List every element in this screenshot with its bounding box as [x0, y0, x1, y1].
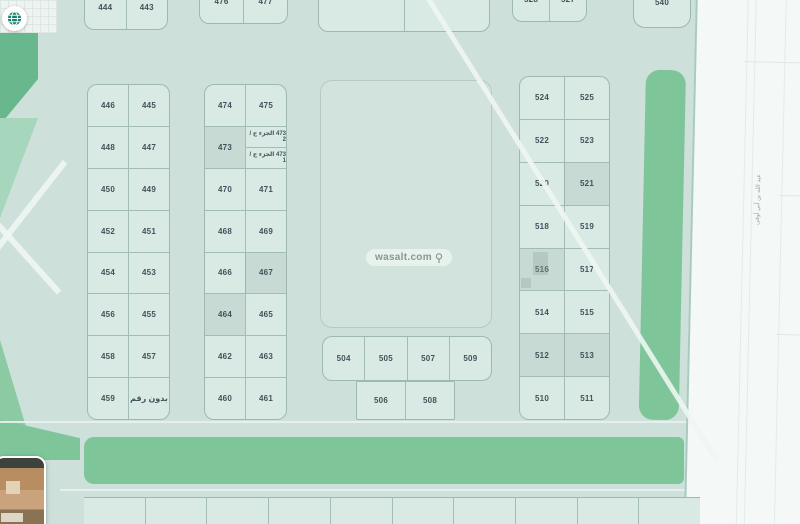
parcel-cell[interactable]: 523: [564, 120, 609, 162]
parcel-cell[interactable]: 464: [205, 294, 245, 335]
parcel-block-right-column: 5245255225235205215185195165175145155125…: [519, 76, 610, 420]
parcel-cell[interactable]: [206, 498, 268, 524]
parcel-row: 458457: [88, 335, 169, 377]
parcel-cell[interactable]: 451: [128, 211, 169, 252]
park-strip-bottom: [84, 437, 684, 484]
parcel-cell[interactable]: 454: [88, 253, 128, 294]
parcel-cell[interactable]: [319, 0, 404, 31]
parcel-subcell[interactable]: 473 الجزء ج / 1: [246, 147, 286, 168]
parcel-row: 540: [634, 0, 690, 27]
parcel-cell[interactable]: 521: [564, 163, 609, 205]
parcel-cell[interactable]: 524: [520, 77, 564, 119]
road-vertical-right: [683, 0, 800, 524]
parcel-cell[interactable]: 463: [245, 336, 286, 377]
parcel-row: 448447: [88, 126, 169, 168]
parcel-block-top-right-single: 540: [633, 0, 691, 28]
parcel-cell[interactable]: [638, 498, 700, 524]
parcel-cell[interactable]: 457: [128, 336, 169, 377]
parcel-cell[interactable]: 452: [88, 211, 128, 252]
parcel-cell[interactable]: 473 الجزء ج / 2473 الجزء ج / 1: [245, 127, 286, 168]
parcel-cell[interactable]: 507: [407, 337, 449, 380]
parcel-block-bottom-row-bottom: 506508: [356, 381, 455, 420]
parcel-cell[interactable]: 505: [364, 337, 406, 380]
parcel-cell[interactable]: 453: [128, 253, 169, 294]
road-edge-line: [683, 0, 698, 524]
parcel-cell[interactable]: 460: [205, 378, 245, 419]
central-parcel-block[interactable]: [320, 80, 492, 328]
parcel-block-top-wide: [318, 0, 490, 32]
parcel-row: 528527: [513, 0, 586, 21]
parcel-row: 452451: [88, 210, 169, 252]
parcel-cell[interactable]: 527: [549, 0, 586, 21]
parcel-row: 473473 الجزء ج / 2473 الجزء ج / 1: [205, 126, 286, 168]
building-footprint: [533, 252, 548, 275]
globe-icon: [7, 11, 22, 26]
map-pin-icon: [435, 253, 443, 263]
globe-button[interactable]: [2, 6, 27, 31]
diagonal-road: [0, 201, 61, 294]
map-canvas[interactable]: عبد الله بن أبي أوفى 4444434764775285275…: [0, 0, 800, 524]
parcel-cell[interactable]: 461: [245, 378, 286, 419]
road-line: [0, 421, 700, 423]
parcel-cell[interactable]: 511: [564, 377, 609, 419]
parcel-cell[interactable]: بدون رقم: [128, 378, 169, 419]
parcel-cell[interactable]: [145, 498, 207, 524]
parcel-row: 468469: [205, 210, 286, 252]
parcel-cell[interactable]: 445: [128, 85, 169, 126]
road-line: [60, 489, 700, 491]
building-footprint: [521, 278, 531, 288]
parcel-cell[interactable]: 473: [205, 127, 245, 168]
satellite-view-button[interactable]: [0, 456, 46, 524]
parcel-cell[interactable]: 447: [128, 127, 169, 168]
parcel-cell[interactable]: 513: [564, 334, 609, 376]
parcel-row: 524525: [520, 77, 609, 119]
park-area: [0, 33, 38, 125]
parcel-cell[interactable]: 455: [128, 294, 169, 335]
parcel-row: 456455: [88, 293, 169, 335]
parcel-row: 466467: [205, 252, 286, 294]
road-lane-line: [735, 0, 749, 524]
parcel-cell[interactable]: 514: [520, 291, 564, 333]
parcel-cell[interactable]: 477: [243, 0, 287, 23]
parcel-block-top-mid-pair: 476477: [199, 0, 288, 24]
parcel-cell[interactable]: 525: [564, 77, 609, 119]
neighbor-parcel-line: [744, 61, 800, 64]
parcel-block-top-left-pair: 444443: [84, 0, 168, 30]
parcel-cell[interactable]: 506: [357, 382, 405, 419]
parcel-block-bottom-strip: [84, 497, 700, 524]
parcel-cell[interactable]: 516: [520, 249, 564, 291]
parcel-cell[interactable]: 446: [88, 85, 128, 126]
parcel-cell[interactable]: 475: [245, 85, 286, 126]
parcel-cell[interactable]: 509: [449, 337, 491, 380]
parcel-cell[interactable]: 465: [245, 294, 286, 335]
parcel-block-left-column: 4464454484474504494524514544534564554584…: [87, 84, 170, 420]
parcel-cell[interactable]: 466: [205, 253, 245, 294]
parcel-cell[interactable]: 449: [128, 169, 169, 210]
watermark: wasalt.com: [366, 249, 452, 266]
parcel-row: 462463: [205, 335, 286, 377]
watermark-text: wasalt.com: [375, 252, 432, 263]
parcel-cell[interactable]: 467: [245, 253, 286, 294]
parcel-cell[interactable]: 444: [85, 0, 126, 29]
parcel-cell[interactable]: [453, 498, 515, 524]
parcel-cell[interactable]: 508: [405, 382, 454, 419]
parcel-cell[interactable]: 518: [520, 206, 564, 248]
road-lane-line: [773, 0, 787, 524]
parcel-cell[interactable]: 510: [520, 377, 564, 419]
parcel-block-bottom-row-top: 504505507509: [322, 336, 492, 381]
parcel-cell[interactable]: 443: [126, 0, 168, 29]
parcel-row: 506508: [357, 382, 454, 419]
parcel-cell[interactable]: 476: [200, 0, 243, 23]
parcel-cell[interactable]: 540: [634, 0, 690, 27]
parcel-row: [319, 0, 489, 31]
parcel-row: 512513: [520, 333, 609, 376]
parcel-row: 460461: [205, 377, 286, 419]
parcel-row: 470471: [205, 168, 286, 210]
parcel-cell[interactable]: [515, 498, 577, 524]
satellite-image-detail: [6, 481, 20, 495]
parcel-cell[interactable]: [268, 498, 330, 524]
parcel-cell[interactable]: 471: [245, 169, 286, 210]
parcel-cell[interactable]: 468: [205, 211, 245, 252]
parcel-row: 522523: [520, 119, 609, 162]
parcel-row: 459بدون رقم: [88, 377, 169, 419]
parcel-cell[interactable]: [577, 498, 639, 524]
parcel-cell[interactable]: [330, 498, 392, 524]
parcel-row: 514515: [520, 290, 609, 333]
parcel-cell[interactable]: 528: [513, 0, 549, 21]
parcel-cell[interactable]: 458: [88, 336, 128, 377]
parcel-row: 450449: [88, 168, 169, 210]
parcel-cell[interactable]: 504: [323, 337, 364, 380]
parcel-cell[interactable]: 469: [245, 211, 286, 252]
parcel-cell[interactable]: 515: [564, 291, 609, 333]
parcel-cell[interactable]: 470: [205, 169, 245, 210]
parcel-row: 504505507509: [323, 337, 491, 380]
parcel-block-middle-column: 474475473473 الجزء ج / 2473 الجزء ج / 14…: [204, 84, 287, 420]
parcel-cell[interactable]: 456: [88, 294, 128, 335]
parcel-row: 476477: [200, 0, 287, 23]
parcel-row: 454453: [88, 252, 169, 294]
parcel-subcell[interactable]: 473 الجزء ج / 2: [246, 127, 286, 147]
parcel-row: 444443: [85, 0, 167, 29]
parcel-cell[interactable]: 474: [205, 85, 245, 126]
parcel-row: 474475: [205, 85, 286, 126]
neighbor-parcel-line: [776, 334, 800, 336]
parcel-cell[interactable]: [392, 498, 454, 524]
parcel-row: 510511: [520, 376, 609, 419]
parcel-cell[interactable]: 448: [88, 127, 128, 168]
satellite-image-detail: [1, 513, 23, 522]
parcel-row: [84, 498, 700, 524]
parcel-cell[interactable]: 462: [205, 336, 245, 377]
parcel-cell[interactable]: 512: [520, 334, 564, 376]
parcel-cell[interactable]: 459: [88, 378, 128, 419]
parcel-row: 464465: [205, 293, 286, 335]
parcel-row: 446445: [88, 85, 169, 126]
parcel-cell[interactable]: [84, 498, 145, 524]
parcel-block-top-right-pair: 528527: [512, 0, 587, 22]
neighbor-parcel-line: [779, 195, 800, 197]
parcel-cell[interactable]: 450: [88, 169, 128, 210]
